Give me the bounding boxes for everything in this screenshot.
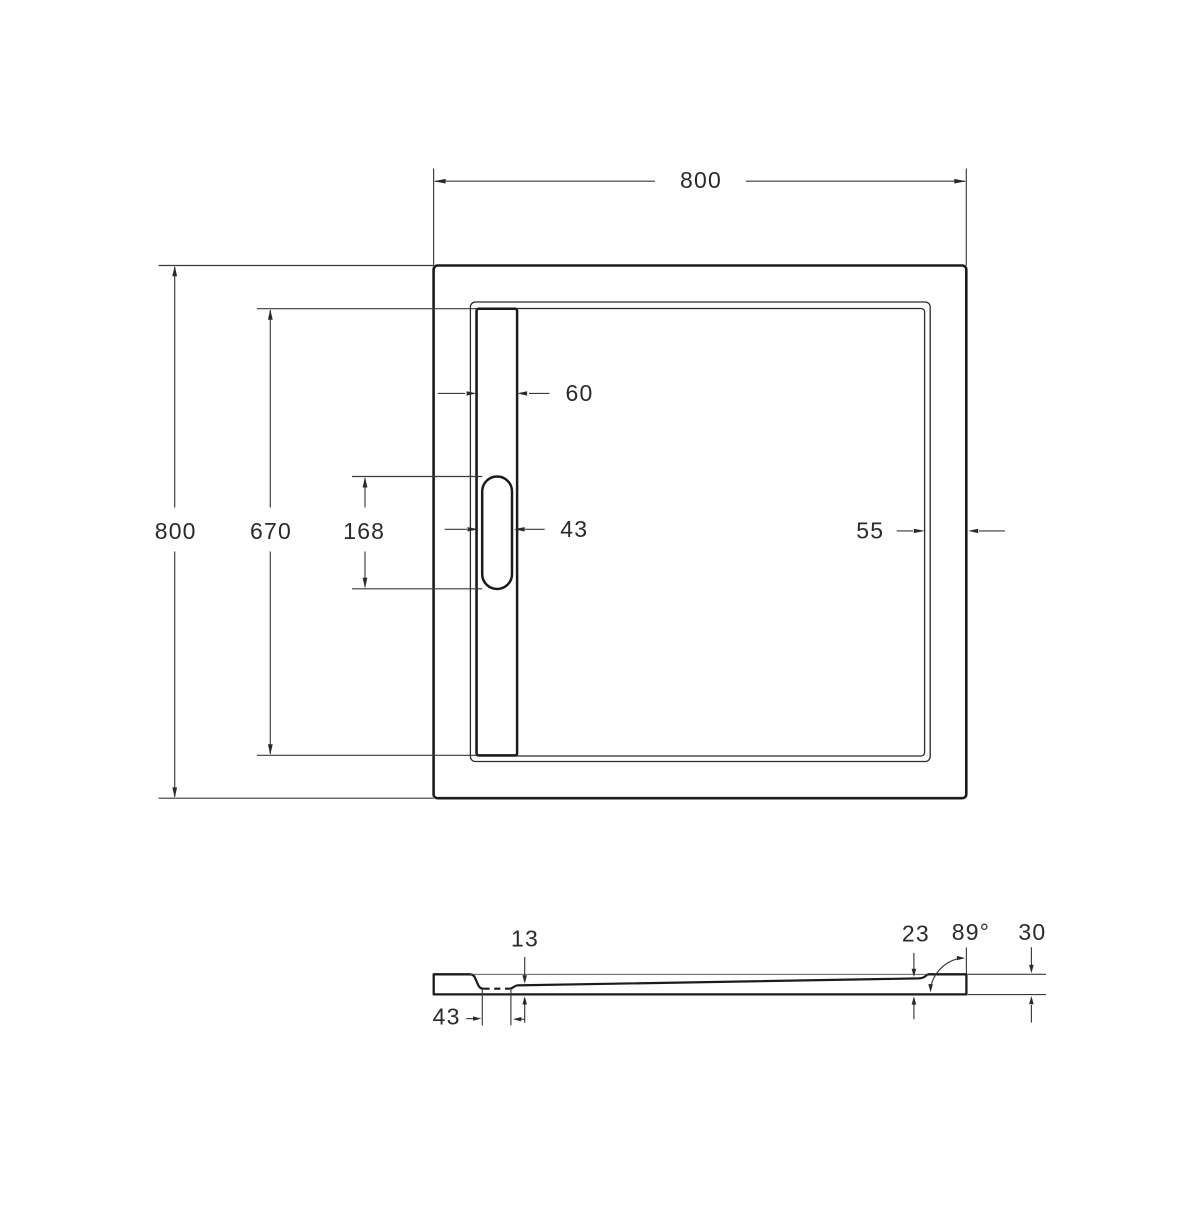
svg-text:168: 168 (343, 518, 385, 544)
svg-text:89°: 89° (952, 919, 990, 945)
svg-text:55: 55 (856, 517, 884, 543)
svg-text:23: 23 (902, 920, 930, 946)
svg-text:60: 60 (566, 380, 594, 406)
svg-text:670: 670 (250, 518, 292, 544)
svg-text:43: 43 (560, 516, 588, 542)
svg-text:13: 13 (511, 926, 539, 952)
svg-text:43: 43 (433, 1004, 461, 1030)
svg-text:800: 800 (155, 518, 197, 544)
svg-text:800: 800 (680, 167, 722, 193)
svg-text:30: 30 (1018, 919, 1046, 945)
